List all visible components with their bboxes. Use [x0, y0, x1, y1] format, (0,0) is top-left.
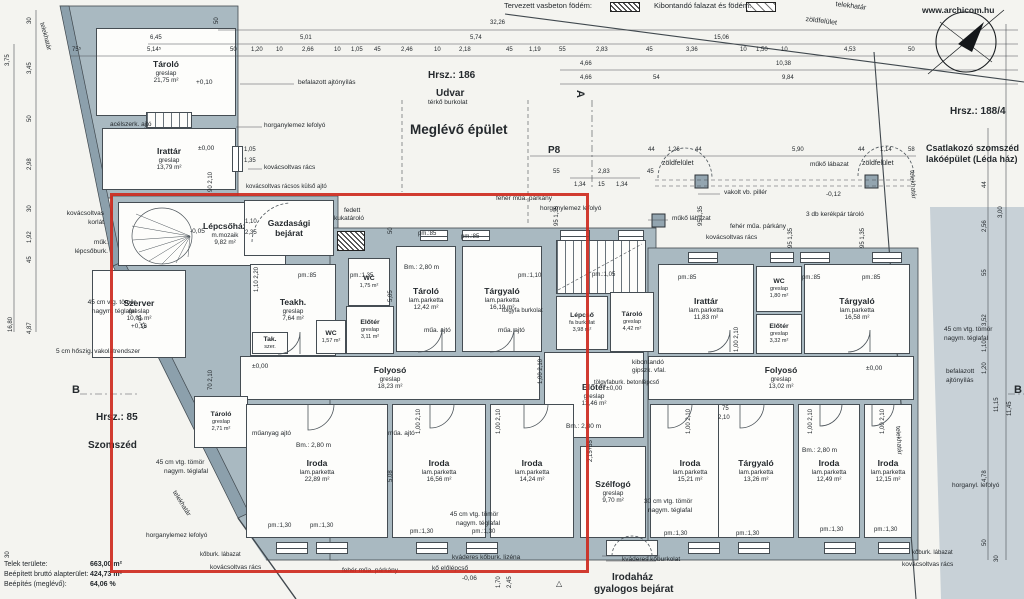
door-arc [858, 146, 914, 176]
door-arc [658, 148, 712, 178]
door-arc [632, 536, 652, 556]
legend-demolish-label: Kibontandó falazat és födém: [654, 1, 751, 10]
website-label: www.archicom.hu [922, 5, 994, 15]
stat-row: Telek területe:663,00 m² [4, 560, 122, 570]
door-arc [848, 330, 870, 352]
legend-planned-label: Tervezett vasbeton födém: [504, 1, 592, 10]
red-selection-rectangle [110, 193, 589, 573]
stat-row: Beépítés (meglévő):64,06 % [4, 580, 122, 590]
door-arc [740, 404, 764, 428]
door-arc [668, 404, 692, 428]
door-arc [872, 404, 894, 426]
door-arc [708, 330, 730, 352]
floorplan-scan: Tervezett vasbeton födém: Kibontandó fal… [0, 0, 1024, 599]
door-arc [612, 536, 632, 556]
compass-rose-icon [928, 10, 1004, 74]
site-statistics: Telek területe:663,00 m² Beépített brutt… [4, 560, 122, 590]
door-arc [820, 404, 842, 426]
beepites-value: 64,06 % [90, 581, 116, 588]
stat-row: Beépített bruttó alapterület:424,73 m² [4, 570, 122, 580]
